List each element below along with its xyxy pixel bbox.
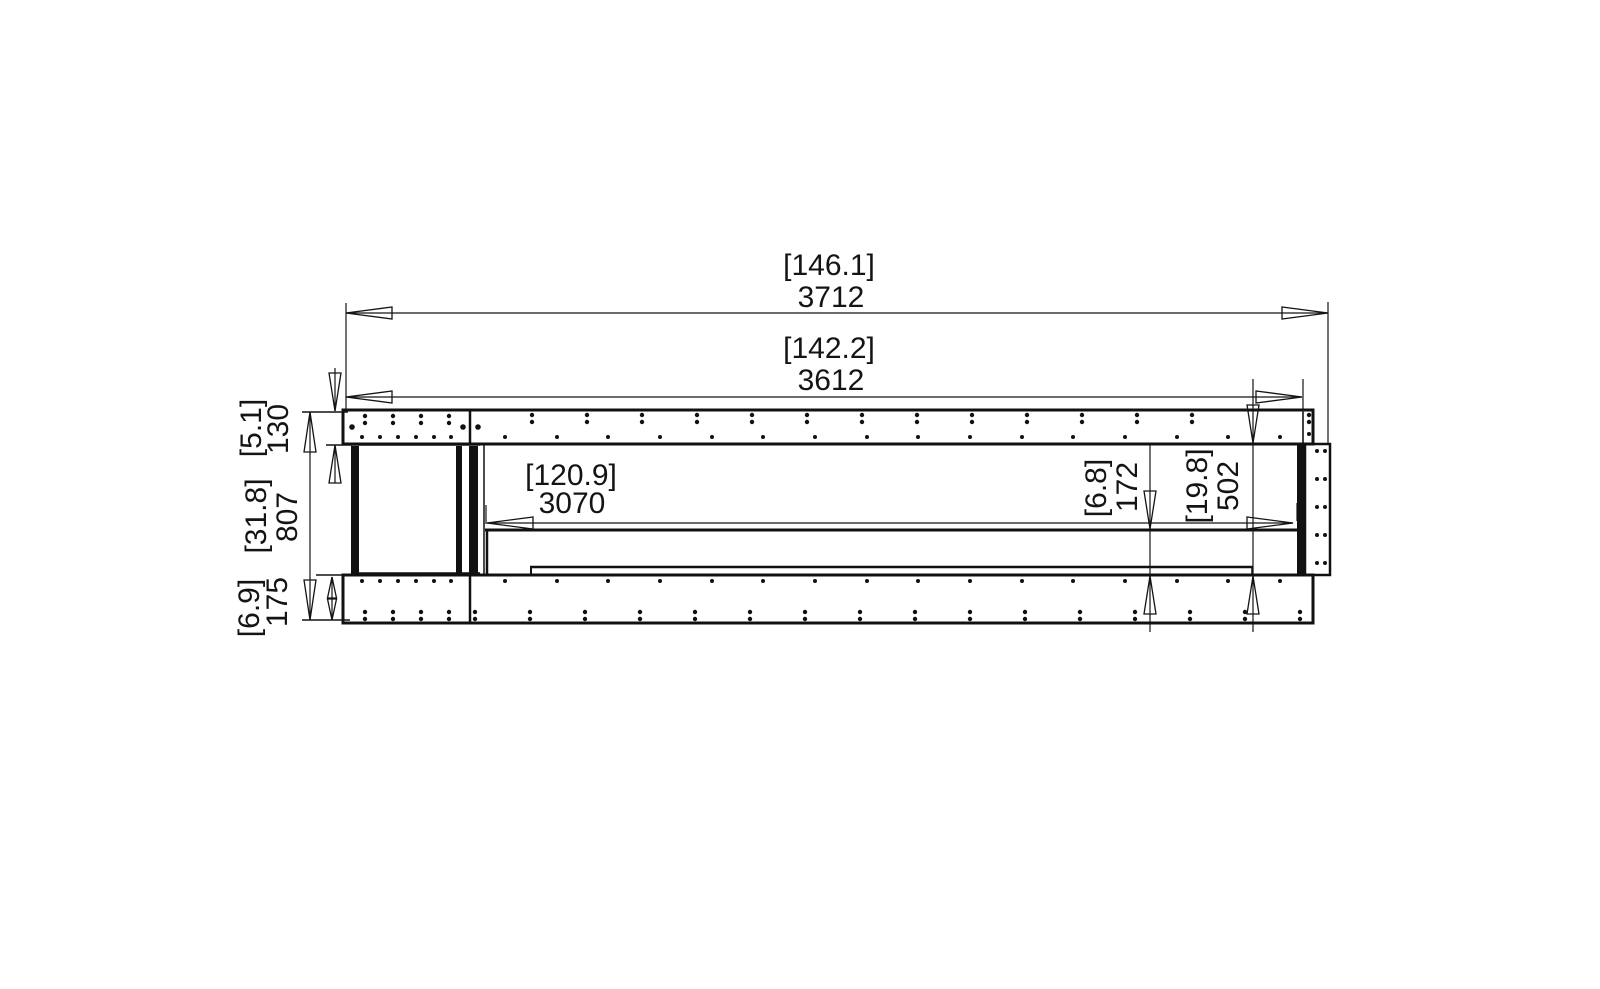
overall-width-inches-label: [146.1] [783,249,875,282]
base-height-mm-label: 175 [261,577,294,627]
burner-width-mm-label: 3070 [539,487,606,520]
technical-drawing-page: [146.1] 3712 [142.2] 3612 [120.9] 3070 [… [0,0,1600,989]
top-rail [343,410,1313,444]
top-frame-height-mm-label: 130 [262,404,295,454]
firebox-depth-mm-label: 172 [1111,462,1144,512]
window-height-inches-label: [19.8] [1181,448,1214,523]
left-box-inner-wall [456,446,462,573]
window-height-mm-label: 502 [1212,461,1245,511]
frame-width-inches-label: [142.2] [783,332,875,365]
overall-height-inches-label: [31.8] [240,478,273,553]
firebox-depth-inches-label: [6.8] [1080,459,1113,517]
overall-height-mm-label: 807 [271,492,304,542]
frame-width-mm-label: 3612 [798,364,865,397]
fireplace-dimension-diagram: [146.1] 3712 [142.2] 3612 [120.9] 3070 [… [0,0,1600,989]
left-box-left-wall [351,446,359,573]
left-box-right-wall [469,446,478,573]
bottom-rail [343,575,1313,623]
overall-width-mm-label: 3712 [798,281,865,314]
right-end-panel [1305,444,1330,575]
